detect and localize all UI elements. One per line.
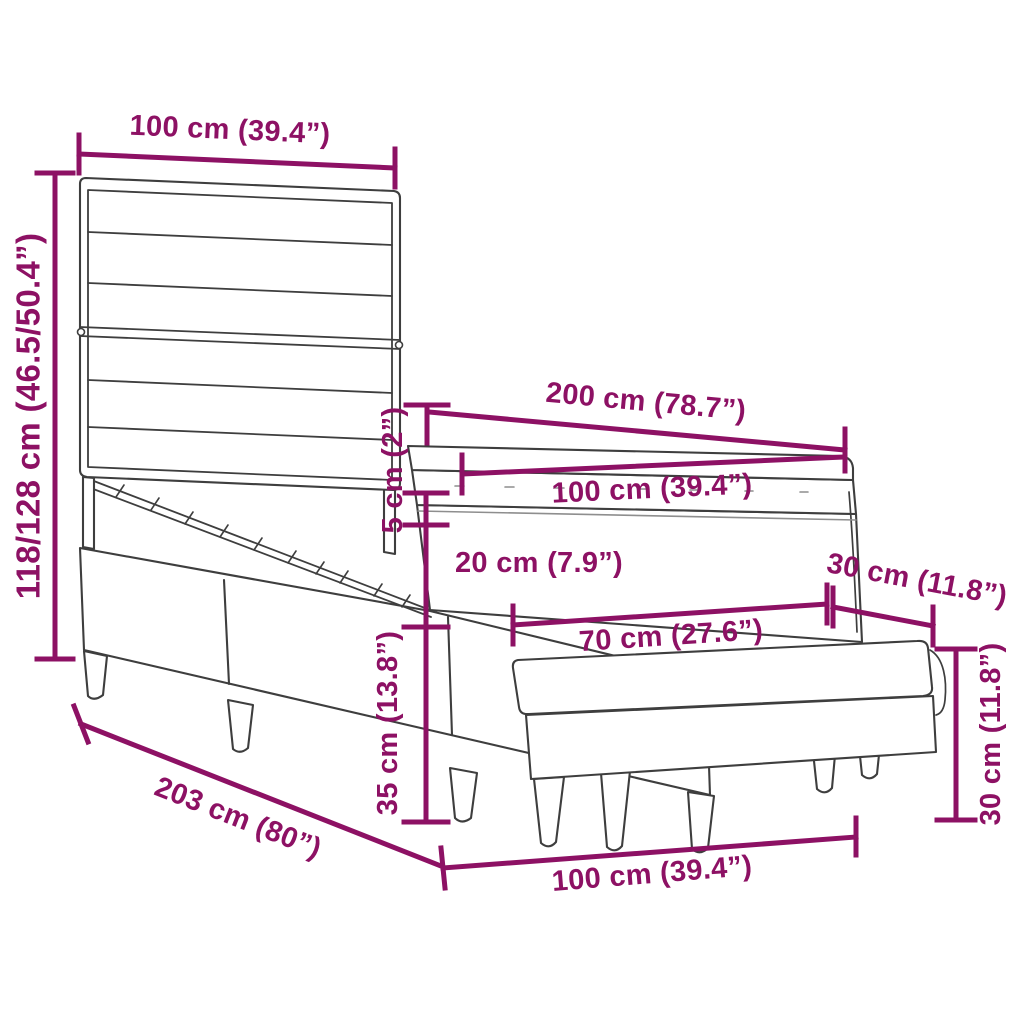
dim-bench-height	[937, 649, 975, 820]
label-mattress-thickness: 20 cm (7.9”)	[455, 547, 623, 579]
bench-leg	[601, 771, 630, 850]
label-base-height: 35 cm (13.8”)	[372, 631, 404, 815]
headboard-seam-nub	[78, 329, 85, 336]
furniture-line-art	[78, 178, 946, 852]
headboard-leg	[83, 477, 94, 549]
label-bed-height: 118/128 cm (46.5/50.4”)	[10, 233, 47, 600]
bed-leg	[228, 700, 253, 752]
headboard-seam-nub	[396, 342, 403, 349]
label-bed-length: 200 cm (78.7”)	[545, 377, 748, 427]
label-topper-thickness: 5 cm (2”)	[377, 407, 409, 534]
bed-leg	[688, 792, 714, 852]
label-headboard-width: 100 cm (39.4”)	[129, 110, 331, 151]
bed-dimension-diagram: 100 cm (39.4”) 118/128 cm (46.5/50.4”) 2…	[0, 0, 1024, 1024]
label-bench-height: 30 cm (11.8”)	[975, 643, 1007, 826]
bed-leg	[84, 651, 107, 699]
diagram-canvas: 100 cm (39.4”) 118/128 cm (46.5/50.4”) 2…	[0, 0, 1024, 1024]
bench-leg	[534, 777, 564, 846]
bed-leg	[450, 768, 477, 822]
